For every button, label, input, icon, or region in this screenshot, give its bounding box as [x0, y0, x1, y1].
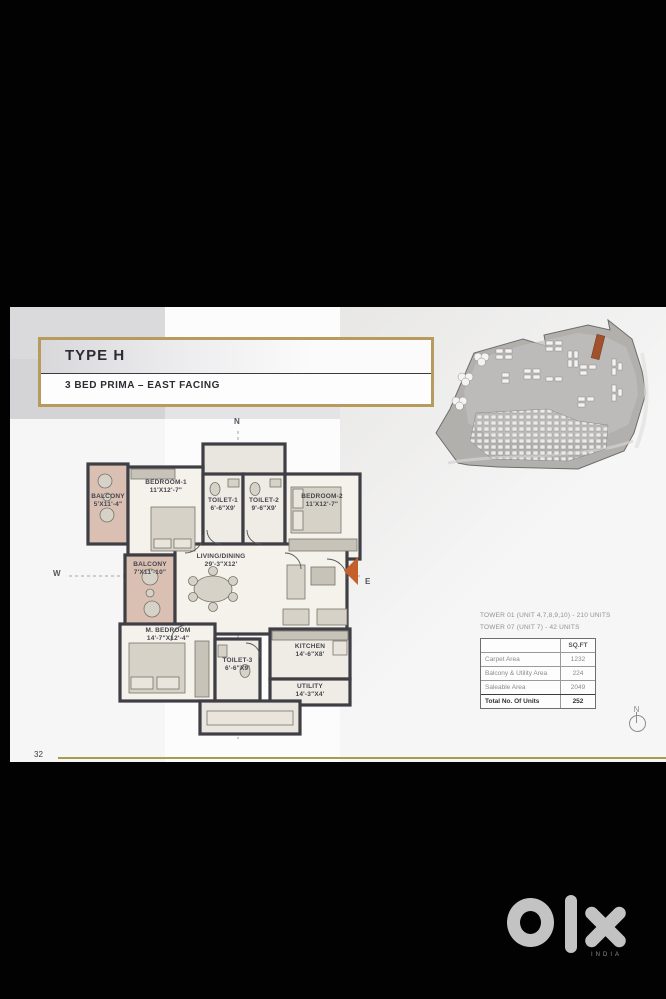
compass-east-label: E [365, 577, 370, 586]
plan-header-box: TYPE H 3 BED PRIMA – EAST FACING [38, 337, 434, 407]
keyplan-drawing [428, 313, 666, 485]
keyplan-map: KEYPLAN [428, 313, 666, 485]
north-compass-icon: N [622, 705, 652, 741]
plan-type-title: TYPE H [65, 347, 125, 364]
olx-india-label: INDIA [591, 952, 622, 958]
page-number: 32 [34, 750, 43, 759]
table-row-carpet: Carpet Area 1232 [481, 652, 595, 666]
table-row-total-units: Total No. Of Units 252 [481, 694, 595, 708]
room-label-living-dining: LIVING/DINING29'-3"X12' [175, 553, 267, 569]
plan-subtitle: 3 BED PRIMA – EAST FACING [65, 380, 220, 391]
footer-gold-rule [58, 757, 666, 759]
room-label-utility: UTILITY14'-3"X4' [272, 683, 348, 699]
tower-info-line1: TOWER 01 (UNIT 4,7,8,9,10) - 210 UNITS [480, 610, 611, 622]
room-label-bedroom2: BEDROOM-211'X12'-7" [287, 493, 357, 509]
tower-info: TOWER 01 (UNIT 4,7,8,9,10) - 210 UNITS T… [480, 610, 611, 633]
table-row-balcony-utility: Balcony & Utility Area 224 [481, 666, 595, 680]
room-label-kitchen: KITCHEN14'-6"X8' [272, 643, 348, 659]
room-label-master-bedroom: M. BEDROOM14'-7"X12'-4" [122, 627, 214, 643]
table-header-row: SQ.FT [481, 639, 595, 652]
table-header-blank [481, 639, 560, 652]
table-row-saleable: Saleable Area 2049 [481, 680, 595, 694]
olx-o-glyph [507, 898, 554, 947]
room-label-balcony2: BALCONY7'X11'-10" [125, 561, 175, 577]
olx-x-glyph [583, 903, 627, 951]
room-label-balcony1: BALCONY5'X11'-4" [88, 493, 128, 509]
room-label-bedroom1: BEDROOM-111'X12'-7" [131, 479, 201, 495]
brochure-page: TYPE H 3 BED PRIMA – EAST FACING [10, 307, 666, 762]
olx-l-glyph [565, 895, 577, 953]
area-table: SQ.FT Carpet Area 1232 Balcony & Utility… [480, 638, 596, 709]
compass-west-label: W [53, 569, 61, 578]
floorplan: BALCONY5'X11'-4" BEDROOM-111'X12'-7" TOI… [55, 419, 377, 743]
table-header-sqft: SQ.FT [560, 639, 595, 652]
compass-north-label: N [234, 417, 240, 426]
room-label-toilet2: TOILET-29'-6"X9' [242, 497, 286, 513]
screenshot-root: TYPE H 3 BED PRIMA – EAST FACING [0, 0, 666, 999]
tower-info-line2: TOWER 07 (UNIT 7) - 42 UNITS [480, 622, 611, 634]
room-label-toilet1: TOILET-16'-6"X9' [201, 497, 245, 513]
olx-logo: INDIA [497, 890, 647, 965]
room-label-toilet3: TOILET-36'-6"X9' [215, 657, 260, 673]
